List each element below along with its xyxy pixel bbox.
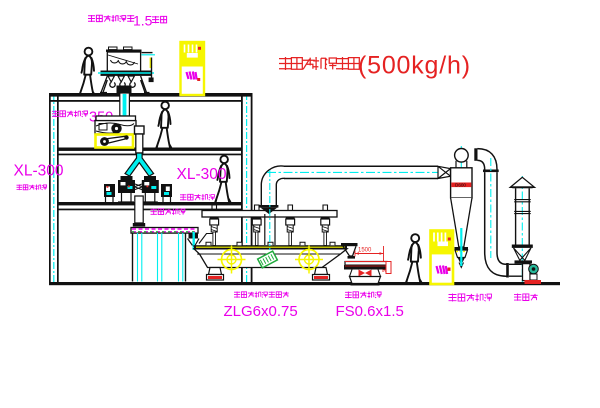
svg-text:(500kg/h): (500kg/h)	[358, 52, 471, 80]
svg-text:1.5: 1.5	[133, 13, 153, 29]
svg-text:FS0.6x1.5: FS0.6x1.5	[336, 303, 404, 320]
svg-text:XL-300: XL-300	[14, 163, 64, 180]
svg-text:D600: D600	[455, 182, 466, 187]
svg-text:XL-300: XL-300	[177, 166, 227, 183]
svg-text:ZLG6x0.75: ZLG6x0.75	[224, 303, 298, 320]
svg-text:1500: 1500	[358, 248, 372, 254]
